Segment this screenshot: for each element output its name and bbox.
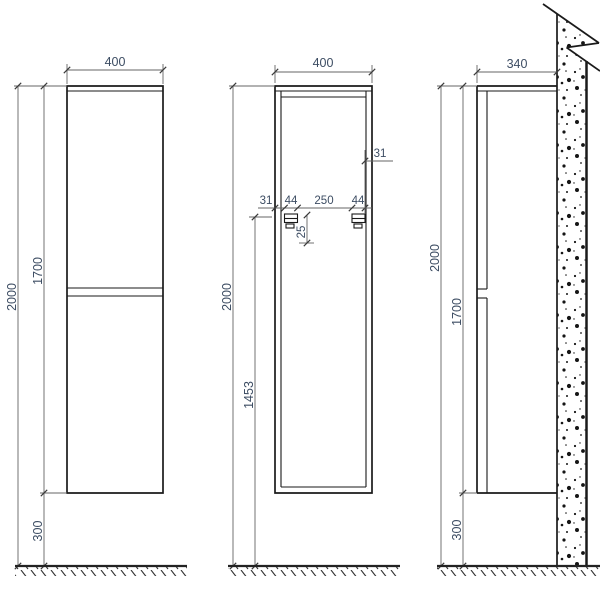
dim-label-front-cabinet-height: 1700 (31, 257, 45, 285)
side-cabinet-outline (477, 86, 557, 493)
rear-mounting-bracket-right (352, 214, 365, 228)
dim-label-front-width: 400 (105, 55, 126, 69)
rear-dim-width: 400 (272, 56, 375, 83)
rear-ground-hatch (228, 567, 400, 576)
front-dim-heights: 2000 1700 300 (5, 83, 67, 569)
rear-cabinet-outline (275, 86, 372, 493)
dim-label-side-floor-clearance: 300 (450, 520, 464, 541)
wall-concrete-texture (557, 14, 599, 566)
side-ground-hatch (437, 567, 600, 576)
dim-label-bracket-drop: 25 (296, 226, 308, 239)
dim-label-rear-width: 400 (313, 56, 334, 70)
technical-drawing-page: 400 2000 1700 300 (0, 0, 600, 600)
dim-label-bracket-offset-left: 31 (260, 195, 273, 207)
rear-dim-heights: 2000 1453 (220, 83, 275, 569)
dim-label-side-cabinet-height: 1700 (450, 298, 464, 326)
dim-label-rear-overall-height: 2000 (220, 283, 234, 311)
front-ground (15, 566, 187, 576)
side-ground (437, 566, 600, 576)
rear-view: 400 31 44 250 44 31 25 (220, 56, 400, 576)
dim-label-bracket-width-right: 44 (352, 195, 365, 207)
dim-label-bracket-offset-right: 31 (374, 148, 387, 160)
dim-label-rail-height: 1453 (242, 381, 256, 409)
side-dim-depth: 340 (474, 57, 560, 83)
dim-label-front-overall-height: 2000 (5, 283, 19, 311)
front-cabinet-outline (67, 86, 163, 493)
dim-label-bracket-spacing: 250 (314, 195, 333, 207)
dim-label-front-floor-clearance: 300 (31, 521, 45, 542)
wall-section (543, 4, 600, 566)
dim-label-bracket-width-left: 44 (285, 195, 298, 207)
front-ground-hatch (15, 567, 187, 576)
dim-label-side-depth: 340 (507, 57, 528, 71)
rear-dim-bracket-drop: 25 (296, 212, 314, 246)
front-view: 400 2000 1700 300 (5, 55, 187, 576)
dim-label-side-overall-height: 2000 (428, 244, 442, 272)
rear-ground (228, 566, 400, 576)
front-dim-width: 400 (64, 55, 166, 84)
side-view: 340 2000 1700 300 (428, 4, 600, 576)
side-dim-heights: 2000 1700 300 (428, 83, 477, 569)
cabinet-installation-drawing: 400 2000 1700 300 (0, 0, 600, 600)
